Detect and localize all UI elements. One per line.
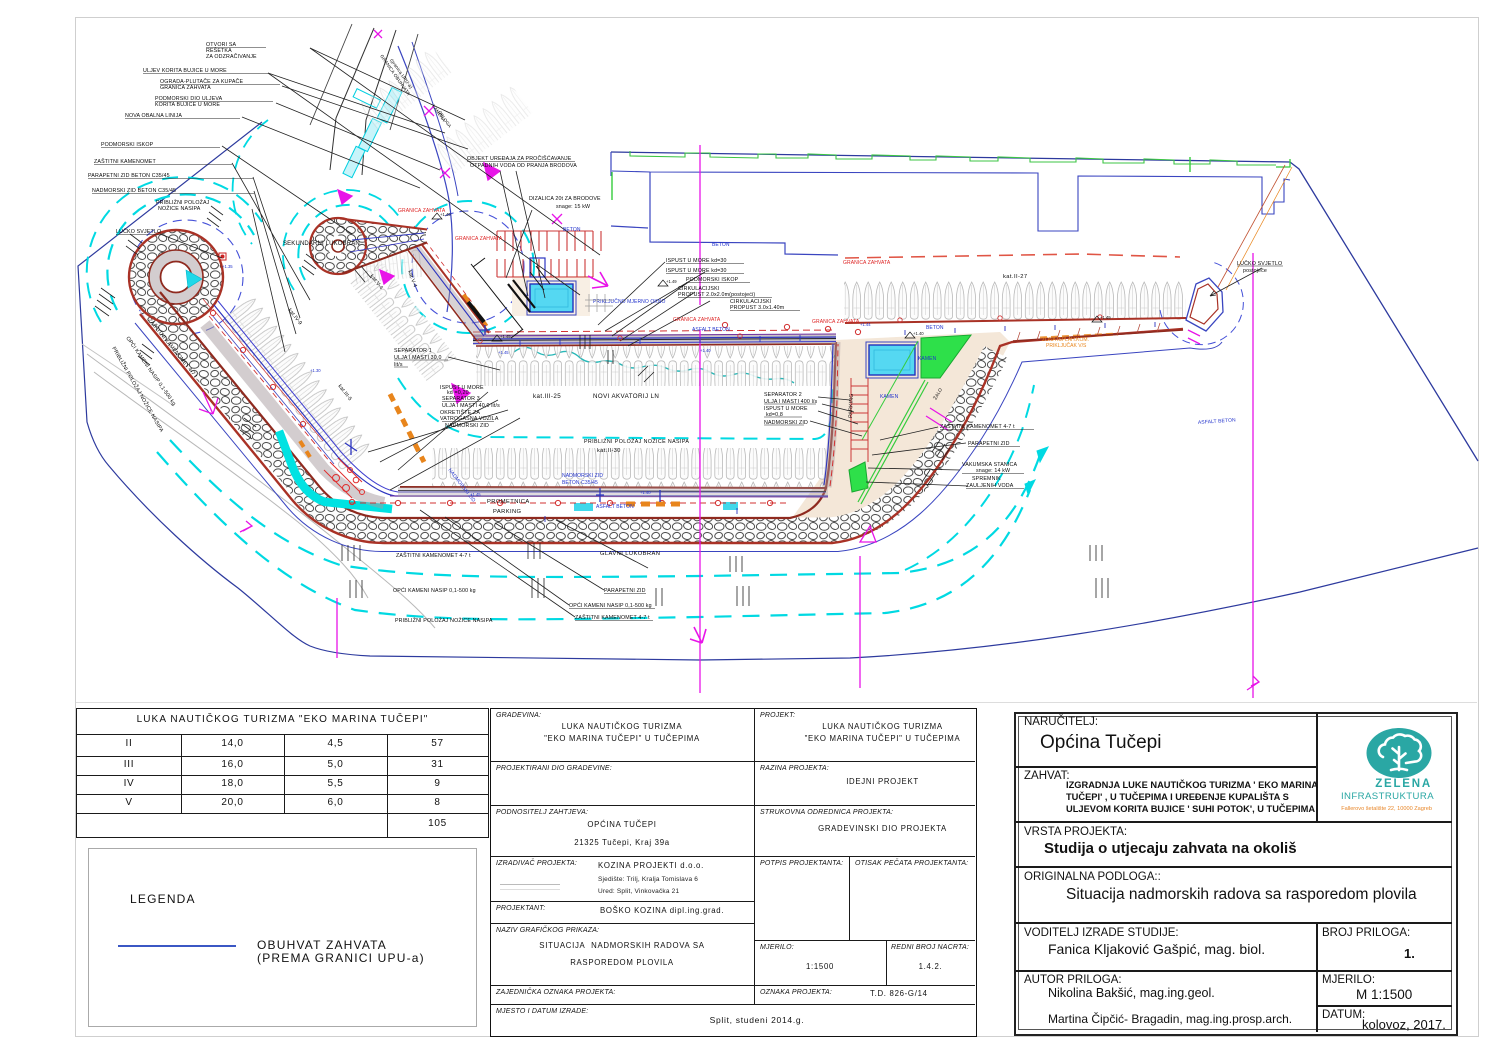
svg-text:SEPARATOR 2: SEPARATOR 2 [764, 392, 802, 398]
svg-text:BETON: BETON [926, 325, 944, 331]
svg-text:ULJEV KORITA BUJICE U MORE: ULJEV KORITA BUJICE U MORE [143, 68, 227, 74]
svg-text:+1.45: +1.45 [498, 350, 509, 355]
svg-text:KAMEN: KAMEN [918, 356, 937, 362]
svg-text:NADMORSKI ZID BETON C35/45: NADMORSKI ZID BETON C35/45 [92, 188, 176, 194]
svg-text:ZAŠTITNI KAMENOMET 4-7 t: ZAŠTITNI KAMENOMET 4-7 t [396, 552, 471, 559]
svg-text:GRANICA ZAHVATA: GRANICA ZAHVATA [398, 208, 446, 214]
svg-text:PARAPETNI ZID BETON C35/45: PARAPETNI ZID BETON C35/45 [88, 173, 170, 179]
svg-text:BETON: BETON [712, 242, 730, 248]
svg-text:OBJEKT UREĐAJA ZA PROČIŠĆAVANJ: OBJEKT UREĐAJA ZA PROČIŠĆAVANJE [467, 155, 572, 162]
svg-text:GRANICA ZAHVATA: GRANICA ZAHVATA [812, 319, 860, 325]
svg-text:KAMEN: KAMEN [880, 394, 899, 400]
svg-text:kat.III-25: kat.III-25 [533, 393, 561, 400]
svg-text:GRANICA ZAHVATA: GRANICA ZAHVATA [455, 236, 503, 242]
svg-text:BETON: BETON [563, 227, 581, 233]
svg-text:ZAŠTITNI KAMENOMET 4-7 t: ZAŠTITNI KAMENOMET 4-7 t [940, 423, 1015, 430]
svg-text:INFRASTRUKTURA: INFRASTRUKTURA [1341, 791, 1434, 802]
svg-text:PARKING: PARKING [848, 393, 855, 418]
svg-text:ASFALT BETON: ASFALT BETON [596, 504, 634, 510]
svg-text:ISPUST U MORE kd=30: ISPUST U MORE kd=30 [666, 268, 727, 274]
svg-text:PROMETNICA: PROMETNICA [487, 499, 530, 505]
svg-text:kat.II-30: kat.II-30 [597, 448, 621, 454]
svg-text:ASFALT BETON: ASFALT BETON [692, 327, 730, 333]
svg-text:snage: 15 kW: snage: 15 kW [556, 204, 590, 210]
svg-text:PODMORSKI ISKOP: PODMORSKI ISKOP [101, 142, 154, 148]
svg-text:GRANICA ZAHVATA: GRANICA ZAHVATA [843, 260, 891, 266]
svg-text:+1.49: +1.49 [1100, 315, 1111, 320]
svg-text:PRIBLIŽNI POLOŽAJ: PRIBLIŽNI POLOŽAJ [156, 198, 210, 206]
svg-text:OTPADNIH VODA OD PRANJA BRODOV: OTPADNIH VODA OD PRANJA BRODOVA [470, 163, 577, 169]
svg-text:ZA ODZRAČIVANJE: ZA ODZRAČIVANJE [206, 53, 257, 60]
svg-text:+1.45: +1.45 [470, 492, 481, 497]
svg-text:GRANICA ZAHVATA: GRANICA ZAHVATA [160, 85, 211, 91]
svg-text:NADMORSKI ZID: NADMORSKI ZID [562, 473, 603, 479]
svg-text:PODMORSKI ISKOP: PODMORSKI ISKOP [686, 277, 739, 283]
svg-text:ULJA I MASTI 40,0 lit/s: ULJA I MASTI 40,0 lit/s [442, 403, 500, 409]
svg-text:NOVI AKVATORIJ LN: NOVI AKVATORIJ LN [593, 393, 659, 400]
svg-text:SEKUNDARNI LUKOBRAN: SEKUNDARNI LUKOBRAN [283, 241, 360, 247]
svg-text:PROPUST 3.0x1.40m: PROPUST 3.0x1.40m [730, 305, 785, 311]
svg-text:+1.40: +1.40 [913, 331, 924, 336]
svg-text:+1.44: +1.44 [860, 322, 871, 327]
svg-text:ZAULJENIH VODA: ZAULJENIH VODA [966, 483, 1014, 489]
svg-text:kat.II-27: kat.II-27 [1003, 274, 1028, 280]
svg-text:kat.III-5: kat.III-5 [336, 384, 352, 403]
svg-text:SEPARATOR 3: SEPARATOR 3 [442, 396, 480, 402]
svg-text:PARAPETNI ZID: PARAPETNI ZID [968, 441, 1010, 447]
svg-text:Fallerovo šetalište 22, 10000: Fallerovo šetalište 22, 10000 Zagreb [1341, 806, 1432, 812]
svg-text:+1.40: +1.40 [700, 348, 711, 353]
svg-text:PARKING: PARKING [493, 509, 522, 515]
svg-text:PRIKLJUČNO MJERNO OKNO: PRIKLJUČNO MJERNO OKNO [593, 298, 666, 305]
svg-text:SPREMNIK: SPREMNIK [972, 476, 1001, 482]
svg-text:DIZALICA 20t ZA BRODOVE: DIZALICA 20t ZA BRODOVE [529, 196, 601, 202]
svg-text:ISPUST U MORE kd=30: ISPUST U MORE kd=30 [666, 258, 727, 264]
svg-text:+1.49: +1.49 [440, 212, 451, 217]
svg-text:ZAŠTITNI KAMENOMET 4-7 t: ZAŠTITNI KAMENOMET 4-7 t [575, 614, 650, 621]
svg-text:PRIBLIŽNI POLOŽAJ NOŽICE NASIP: PRIBLIŽNI POLOŽAJ NOŽICE NASIPA [395, 616, 493, 624]
svg-text:NOVA OBALNA LINIJA: NOVA OBALNA LINIJA [125, 113, 182, 119]
svg-text:+1.30: +1.30 [310, 368, 321, 373]
svg-text:snage: 14 kW: snage: 14 kW [976, 468, 1010, 474]
svg-text:KORITA BUJICE U MORE: KORITA BUJICE U MORE [155, 102, 220, 108]
svg-text:PARAPETNI ZID: PARAPETNI ZID [604, 588, 646, 594]
svg-text:GRANICA ZAHVATA: GRANICA ZAHVATA [673, 317, 721, 323]
svg-text:BETON C35/45: BETON C35/45 [562, 480, 598, 486]
svg-text:OPĆI KAMENI NASIP 0,1-500 kg: OPĆI KAMENI NASIP 0,1-500 kg [393, 587, 476, 594]
svg-text:OBLOGA: OBLOGA [437, 110, 452, 129]
svg-text:NADMORSKI ZID: NADMORSKI ZID [445, 423, 489, 429]
svg-text:GLAVNI LUKOBRAN: GLAVNI LUKOBRAN [600, 551, 660, 557]
svg-text:PRIBLIŽNI POLOŽAJ NOŽICE NASIP: PRIBLIŽNI POLOŽAJ NOŽICE NASIPA [584, 437, 689, 445]
svg-text:REŠETKA: REŠETKA [206, 47, 232, 54]
svg-text:postojeće: postojeće [1243, 268, 1267, 274]
svg-text:+1.49: +1.49 [666, 279, 677, 284]
svg-text:ZAŠTITNI KAMENOMET: ZAŠTITNI KAMENOMET [94, 158, 156, 165]
svg-text:VATROGASNA VOZILA: VATROGASNA VOZILA [440, 416, 499, 422]
svg-text:+1.40: +1.40 [640, 490, 651, 495]
svg-text:ZELENA: ZELENA [1375, 778, 1432, 790]
svg-text:NOŽICE NASIPA: NOŽICE NASIPA [158, 204, 201, 212]
svg-text:OPĆI KAMENI NASIP 0,1-500 kg: OPĆI KAMENI NASIP 0,1-500 kg [569, 602, 652, 609]
svg-text:+1.45: +1.45 [500, 334, 511, 339]
svg-text:kat.IV-9: kat.IV-9 [286, 308, 303, 327]
svg-text:SEPARATOR 1: SEPARATOR 1 [394, 348, 432, 354]
svg-text:LUČKO SVJETLO: LUČKO SVJETLO [116, 228, 161, 235]
svg-text:OGRADA-PLUTAČE ZA KUPAČE: OGRADA-PLUTAČE ZA KUPAČE [160, 78, 243, 85]
svg-text:+1.35: +1.35 [222, 264, 233, 269]
svg-text:ASFALT BETON: ASFALT BETON [1198, 417, 1236, 426]
svg-text:OKRETIŠTE ZA: OKRETIŠTE ZA [440, 409, 480, 416]
svg-text:PRIKLJUČAK V/S: PRIKLJUČAK V/S [1046, 342, 1087, 349]
svg-text:PROPUST 2.0x2.0m(postojeći): PROPUST 2.0x2.0m(postojeći) [678, 292, 755, 298]
